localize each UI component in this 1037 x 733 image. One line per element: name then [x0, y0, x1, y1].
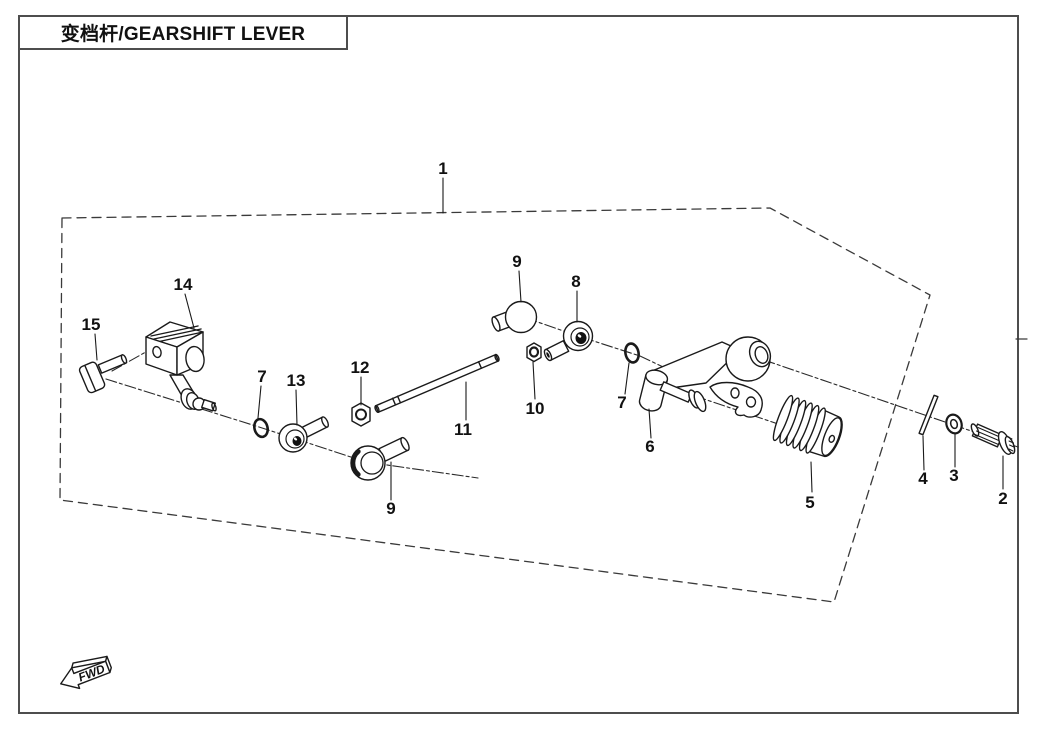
part-4-pin: [919, 395, 938, 434]
callout-label-1: 1: [438, 159, 447, 178]
callout-leaders: [95, 178, 1003, 500]
callout-label-15: 15: [82, 315, 101, 334]
part-13-ball-socket: [279, 416, 330, 452]
exploded-parts-diagram: 1 15 14 7 13 12 11 9 8 10 7 6 9 5 4 3 2 …: [0, 0, 1037, 733]
part-15-hex-bolt: [78, 354, 127, 394]
callout-label-3: 3: [949, 466, 958, 485]
fwd-arrow: FWD: [55, 651, 114, 694]
leader-9a: [519, 271, 521, 302]
callout-label-14: 14: [174, 275, 193, 294]
part-12-hex-nut: [352, 403, 370, 426]
part-9-ball-socket-bottom: [351, 436, 411, 480]
page-title: 变档杆/GEARSHIFT LEVER: [61, 19, 305, 46]
leader-13: [296, 390, 297, 425]
part-6-lever-arm: [638, 337, 774, 417]
part-9-ball-stud-top: [490, 302, 536, 333]
callout-label-5: 5: [805, 493, 814, 512]
part-14-clamp-lever: [146, 322, 217, 411]
callout-label-9a: 9: [512, 252, 521, 271]
callout-label-7b: 7: [617, 393, 626, 412]
callout-label-13: 13: [287, 371, 306, 390]
part-2-mounting-bolt: [970, 423, 1017, 456]
leader-14: [185, 294, 194, 328]
callout-label-6: 6: [645, 437, 654, 456]
callout-label-8: 8: [571, 272, 580, 291]
callout-label-2: 2: [998, 489, 1007, 508]
callout-label-4: 4: [918, 469, 928, 488]
leader-7a: [258, 386, 261, 418]
callout-label-12: 12: [351, 358, 370, 377]
part-8-rod-end: [543, 322, 593, 362]
leader-7b: [625, 363, 629, 394]
center-line-upper-row: [526, 318, 678, 374]
leader-4: [923, 436, 924, 470]
leader-15: [95, 334, 97, 360]
callout-label-10: 10: [526, 399, 545, 418]
callout-labels: 1 15 14 7 13 12 11 9 8 10 7 6 9 5 4 3 2: [82, 159, 1008, 518]
callout-label-11: 11: [454, 420, 472, 439]
part-10-nut: [527, 343, 541, 362]
parts-catalog-page: 1 15 14 7 13 12 11 9 8 10 7 6 9 5 4 3 2 …: [0, 0, 1037, 733]
leader-10: [533, 362, 535, 399]
part-5-rubber-peg: [770, 394, 847, 462]
leader-5: [811, 462, 812, 492]
callout-label-9b: 9: [386, 499, 395, 518]
part-11-shift-rod: [374, 354, 500, 413]
part-3-washer: [944, 413, 964, 436]
leader-6: [649, 409, 651, 438]
callout-label-7a: 7: [257, 367, 266, 386]
title-box: 变档杆/GEARSHIFT LEVER: [18, 15, 348, 50]
part-7-oring-right: [624, 342, 641, 363]
